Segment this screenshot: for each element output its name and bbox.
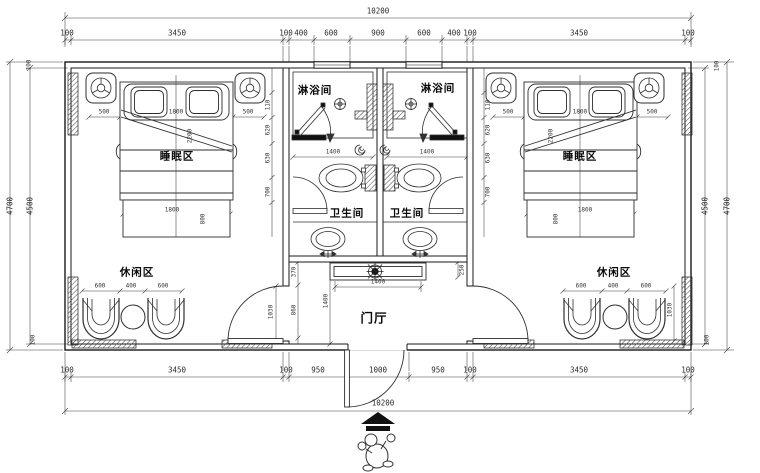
dim-bot-3: 950 xyxy=(311,366,325,375)
dim-bot-6: 100 xyxy=(463,366,477,375)
armchair xyxy=(564,298,600,339)
dim-top-9: 3450 xyxy=(570,29,588,38)
dim-bot-1: 3450 xyxy=(168,366,186,375)
dim-bedL-len: 2200 xyxy=(187,129,194,143)
dim-bedL-w0: 500 xyxy=(99,109,110,116)
dim-bedR-foot: 1800 xyxy=(578,207,592,214)
dim-bedL-s2: 630 xyxy=(265,153,272,164)
dim-top-8: 100 xyxy=(463,29,477,38)
dim-left-outer: 4700 xyxy=(6,197,15,215)
dim-bedR-w1: 1800 xyxy=(573,109,587,116)
dim-bedR-s3: 700 xyxy=(485,187,492,198)
room-label-hall: 门厅 xyxy=(360,308,387,327)
dim-chairR-2: 600 xyxy=(641,283,652,290)
dim-hall-side-1: 860 xyxy=(291,305,298,316)
dim-bathR-w: 1400 xyxy=(420,149,434,156)
round-table xyxy=(603,305,627,329)
bedside-lamp-icon xyxy=(235,73,265,103)
dim-bathL-w: 1400 xyxy=(326,149,340,156)
dim-bedR-s2: 630 xyxy=(485,153,492,164)
dim-top-3: 400 xyxy=(294,29,308,38)
dim-bot-4: 1000 xyxy=(369,366,387,375)
dim-doorR: 1030 xyxy=(667,303,674,317)
dim-top-2: 100 xyxy=(279,29,293,38)
room-label-sleeping-left: 睡眠区 xyxy=(160,149,195,164)
dim-bot-0: 100 xyxy=(60,366,74,375)
armchair xyxy=(83,298,119,339)
floor-drain-icon xyxy=(405,98,417,110)
dim-bedL-w1: 1800 xyxy=(169,109,183,116)
dim-bedL-s3: 700 xyxy=(265,187,272,198)
unit-door-right xyxy=(473,286,528,344)
dim-bedL-footd: 800 xyxy=(200,214,207,225)
dim-total-bottom: 10200 xyxy=(372,399,395,408)
interior-walls xyxy=(283,68,473,344)
dim-bedR-w2: 500 xyxy=(647,109,658,116)
ceiling-fan-icon xyxy=(367,263,384,280)
bedside-lamp-icon xyxy=(86,73,116,103)
dim-chairL-0: 600 xyxy=(95,283,106,290)
dim-bedR-s1: 620 xyxy=(485,125,492,136)
dim-bedR-footd: 800 xyxy=(553,214,560,225)
dim-top-0: 100 xyxy=(60,29,74,38)
paper-roll-icon xyxy=(355,145,365,155)
dim-bedL-w2: 500 xyxy=(243,109,254,116)
dim-left-inner: 4500 xyxy=(26,197,35,215)
dim-top-7: 400 xyxy=(447,29,461,38)
armchair xyxy=(629,298,665,339)
dim-console-w: 1400 xyxy=(371,279,385,286)
dim-right-outer: 4700 xyxy=(723,197,732,215)
dim-right-wall-bottom: 100 xyxy=(704,335,711,346)
unit-door-left xyxy=(228,286,283,344)
dim-top-6: 600 xyxy=(417,29,431,38)
person-figure-icon xyxy=(358,434,395,471)
dim-total-top: 10200 xyxy=(367,7,390,16)
dim-doorL: 1030 xyxy=(268,305,275,319)
dim-bedR-len: 2200 xyxy=(548,129,555,143)
room-label-toilet-left: 卫生间 xyxy=(330,206,365,221)
room-label-shower-right: 淋浴间 xyxy=(421,81,456,96)
dim-bedL-s0: 110 xyxy=(265,100,272,111)
window-top-left xyxy=(314,62,350,68)
entrance-opening xyxy=(348,343,407,350)
dim-chairR-1: 400 xyxy=(608,283,619,290)
armchair xyxy=(148,298,184,339)
dim-right-inner: 4500 xyxy=(701,197,710,215)
dim-bot-8: 100 xyxy=(681,366,695,375)
dim-bedL-s1: 620 xyxy=(265,125,272,136)
dim-top-10: 100 xyxy=(681,29,695,38)
entry-arrow-icon xyxy=(361,412,395,431)
dim-top-1: 3450 xyxy=(168,29,186,38)
floor-plan-sheet: 睡眠区 睡眠区 淋浴间 淋浴间 卫生间 卫生间 休闲区 休闲区 门厅 10200… xyxy=(0,0,760,473)
dim-hall-depth: 1400 xyxy=(323,294,330,308)
room-label-sleeping-right: 睡眠区 xyxy=(563,149,598,164)
sink-right xyxy=(403,228,437,259)
dim-chairL-2: 600 xyxy=(158,283,169,290)
room-label-leisure-left: 休闲区 xyxy=(120,265,155,280)
dim-bot-2: 100 xyxy=(279,366,293,375)
dim-top-5: 900 xyxy=(371,29,385,38)
dim-chairR-0: 600 xyxy=(576,283,587,290)
dim-bedL-foot: 1800 xyxy=(165,207,179,214)
round-table xyxy=(121,305,145,329)
window-top-right xyxy=(406,62,442,68)
dim-bedR-w0: 500 xyxy=(503,109,514,116)
dim-bedR-s0: 110 xyxy=(485,100,492,111)
dim-chairL-1: 400 xyxy=(126,283,137,290)
dim-console-off: 250 xyxy=(459,265,466,276)
bedside-lamp-icon xyxy=(634,73,664,103)
dim-left-wall-top: 100 xyxy=(26,60,33,71)
sink-left xyxy=(311,228,345,259)
dim-right-wall-top: 100 xyxy=(714,61,721,72)
dim-bot-7: 3450 xyxy=(570,366,588,375)
dim-hall-side-0: 370 xyxy=(291,267,298,278)
dim-top-4: 600 xyxy=(324,29,338,38)
room-label-leisure-right: 休闲区 xyxy=(597,265,632,280)
dim-bot-5: 950 xyxy=(431,366,445,375)
room-label-shower-left: 淋浴间 xyxy=(298,83,333,98)
floor-drain-icon xyxy=(334,98,346,110)
dim-left-wall-bottom: 100 xyxy=(30,335,37,346)
room-label-toilet-right: 卫生间 xyxy=(390,206,425,221)
